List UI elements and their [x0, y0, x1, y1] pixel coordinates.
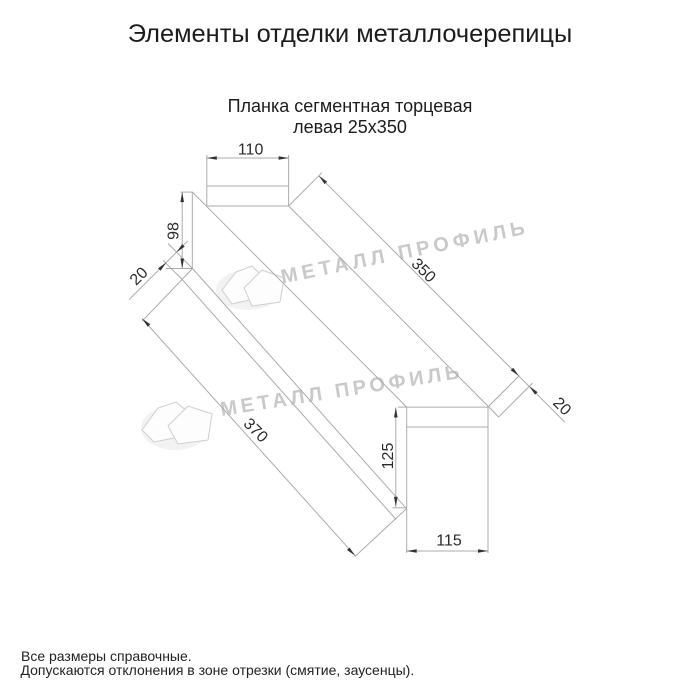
svg-text:20: 20 [127, 264, 152, 289]
svg-text:98: 98 [166, 222, 183, 240]
svg-text:МЕТАЛЛ ПРОФИЛЬ: МЕТАЛЛ ПРОФИЛЬ [279, 217, 531, 289]
svg-text:МЕТАЛЛ ПРОФИЛЬ: МЕТАЛЛ ПРОФИЛЬ [219, 361, 465, 421]
svg-text:125: 125 [380, 443, 397, 470]
svg-text:115: 115 [436, 533, 462, 550]
svg-text:370: 370 [240, 415, 271, 446]
svg-text:110: 110 [238, 142, 264, 159]
svg-text:20: 20 [549, 394, 574, 419]
